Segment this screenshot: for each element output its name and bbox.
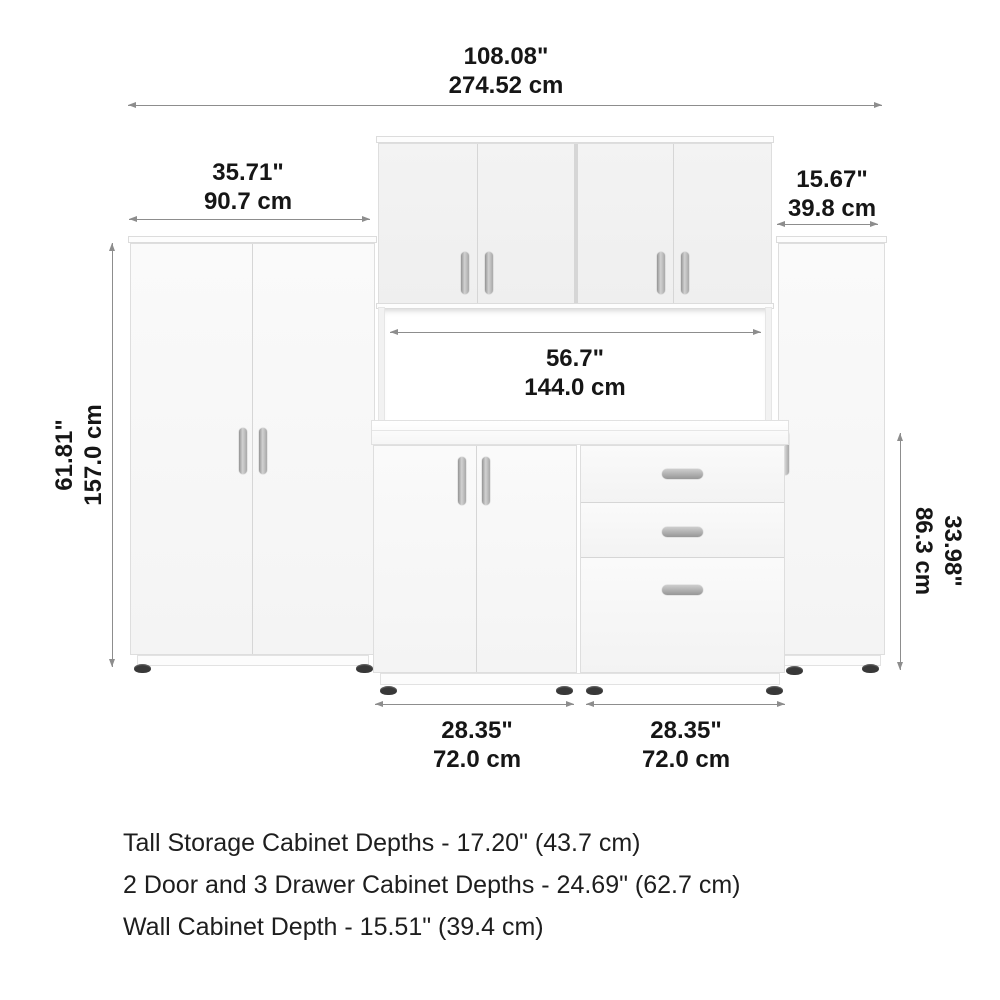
base-cabinet-door-right — [477, 446, 576, 672]
door-handle — [485, 252, 493, 294]
door-handle — [461, 252, 469, 294]
dimension-cm: 39.8 cm — [788, 194, 876, 223]
door-handle — [657, 252, 665, 294]
dimension-inches: 56.7" — [524, 344, 625, 373]
countertop-front-edge — [372, 430, 788, 431]
right-tall-cabinet-door — [779, 244, 884, 654]
depth-note-tall-cabinet: Tall Storage Cabinet Depths - 17.20" (43… — [123, 822, 741, 864]
dimension-cm: 90.7 cm — [204, 187, 292, 216]
door-handle — [239, 428, 247, 474]
dimension-label-base-right-width: 28.35" 72.0 cm — [642, 716, 730, 774]
dimension-label-base-left-width: 28.35" 72.0 cm — [433, 716, 521, 774]
dimension-arrow-base-left-width — [375, 704, 574, 705]
hutch-side-panel-left — [378, 307, 385, 422]
dimension-cm: 72.0 cm — [433, 745, 521, 774]
base-cabinet-countertop — [371, 420, 789, 445]
dimension-arrow-overall-width — [128, 105, 882, 106]
wall-cabinet-top-board — [376, 136, 774, 143]
depth-note-wall-cabinet: Wall Cabinet Depth - 15.51" (39.4 cm) — [123, 906, 741, 948]
left-tall-cabinet-kick-plate — [137, 655, 369, 666]
dimension-inches: 108.08" — [449, 42, 564, 71]
base-door-cabinet — [373, 445, 577, 673]
dimension-label-overall-width: 108.08" 274.52 cm — [449, 42, 564, 100]
dimension-arrow-base-right-width — [586, 704, 785, 705]
door-handle — [259, 428, 267, 474]
cabinet-foot — [786, 666, 803, 675]
dimension-inches: 61.81" — [50, 404, 79, 505]
right-tall-cabinet — [778, 243, 885, 655]
door-handle — [482, 457, 490, 505]
dimension-rotated-text: 61.81" 157.0 cm — [50, 404, 108, 505]
dimension-inches: 35.71" — [204, 158, 292, 187]
wall-cabinet — [378, 143, 772, 304]
base-cabinet-kick-plate — [380, 673, 780, 685]
dimension-cm: 86.3 cm — [909, 507, 938, 595]
door-handle — [458, 457, 466, 505]
dimension-inches: 15.67" — [788, 165, 876, 194]
dimension-arrow-opening-width — [390, 332, 761, 333]
dimension-inches: 28.35" — [642, 716, 730, 745]
left-tall-cabinet-door-right — [253, 244, 374, 654]
drawer-handle — [662, 585, 703, 595]
cabinet-foot — [134, 664, 151, 673]
drawer-handle — [662, 469, 703, 479]
cabinet-foot — [356, 664, 373, 673]
cabinet-foot — [380, 686, 397, 695]
dimension-inches: 28.35" — [433, 716, 521, 745]
drawer-bottom — [581, 558, 784, 672]
right-tall-cabinet-top-board — [776, 236, 887, 243]
left-tall-cabinet-top-board — [128, 236, 377, 243]
cabinet-dimension-diagram: 108.08" 274.52 cm 35.71" 90.7 cm 15.67" … — [0, 0, 1000, 1000]
depth-notes: Tall Storage Cabinet Depths - 17.20" (43… — [123, 822, 741, 948]
dimension-rotated-text: 33.98" 86.3 cm — [909, 507, 967, 595]
cabinet-foot — [586, 686, 603, 695]
base-drawer-cabinet — [580, 445, 785, 673]
left-tall-cabinet — [130, 243, 375, 655]
door-handle — [681, 252, 689, 294]
cabinet-foot — [556, 686, 573, 695]
dimension-label-right-cabinet-width: 15.67" 39.8 cm — [788, 165, 876, 223]
dimension-arrow-right-cabinet-width — [777, 224, 878, 225]
dimension-arrow-tall-cabinet-width — [129, 219, 370, 220]
dimension-arrow-base-cabinet-height — [900, 433, 901, 670]
dimension-label-tall-cabinet-width: 35.71" 90.7 cm — [204, 158, 292, 216]
left-tall-cabinet-door-left — [131, 244, 252, 654]
drawer-handle — [662, 527, 703, 537]
dimension-cm: 157.0 cm — [79, 404, 108, 505]
hutch-side-panel-right — [765, 307, 772, 422]
depth-note-base-cabinets: 2 Door and 3 Drawer Cabinet Depths - 24.… — [123, 864, 741, 906]
dimension-label-opening-width: 56.7" 144.0 cm — [524, 344, 625, 402]
dimension-inches: 33.98" — [938, 507, 967, 595]
dimension-cm: 144.0 cm — [524, 373, 625, 402]
dimension-cm: 274.52 cm — [449, 71, 564, 100]
cabinet-foot — [862, 664, 879, 673]
dimension-cm: 72.0 cm — [642, 745, 730, 774]
cabinet-foot — [766, 686, 783, 695]
dimension-arrow-tall-cabinet-height — [112, 243, 113, 667]
